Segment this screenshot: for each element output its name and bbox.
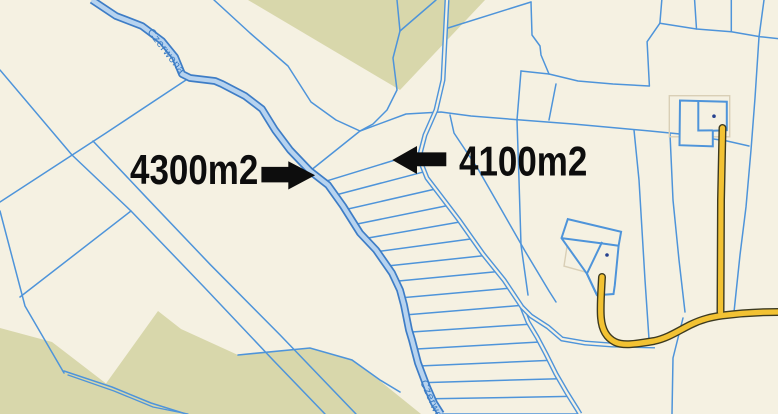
svg-text:4100m2: 4100m2 [459, 139, 587, 186]
svg-text:4300m2: 4300m2 [130, 147, 258, 194]
